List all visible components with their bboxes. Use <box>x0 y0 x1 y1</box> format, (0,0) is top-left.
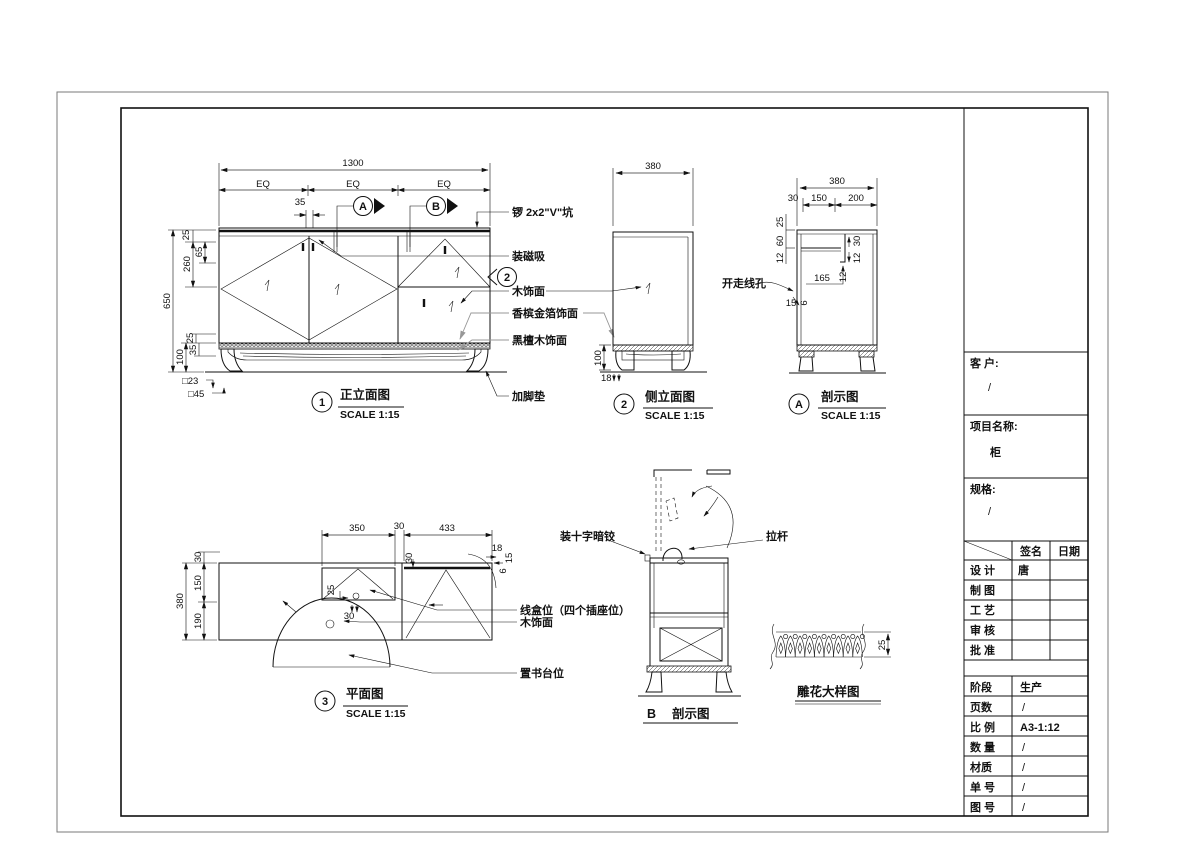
dim-p-150: 150 <box>193 575 204 591</box>
dim-p-350: 350 <box>349 523 365 534</box>
plan-view: 350 30 433 18 15 6 30 25 30 30 150 190 3… <box>175 521 630 720</box>
dim-p-433: 433 <box>439 523 455 534</box>
sign-header: 签名 <box>1019 544 1042 558</box>
cad-sheet: 1300 EQ EQ EQ 35 A B 650 25 260 65 25 10… <box>0 0 1191 842</box>
svg-text:B: B <box>432 201 440 213</box>
callout-champagne-gold: 香槟金箔饰面 <box>511 306 578 320</box>
dim-p-30-mid: 30 <box>404 553 415 564</box>
carving-detail-view: 25 雕花大样图 <box>770 624 891 704</box>
plan-view-scale: SCALE 1:15 <box>346 708 406 720</box>
dim-overall-height: 650 <box>162 293 173 309</box>
ratio-value: A3-1:12 <box>1020 722 1060 734</box>
drawing-no-value: / <box>1022 802 1026 814</box>
side-elevation-view: 380 100 18 2 侧立面图 SCALE 1:15 <box>593 161 713 422</box>
dim-p-6: 6 <box>498 568 509 573</box>
callout-wood-veneer: 木饰面 <box>511 284 545 298</box>
svg-text:A: A <box>359 201 367 213</box>
section-marker-b-arrow-icon <box>447 198 458 214</box>
callout-ebony-veneer: 黑檀木饰面 <box>512 333 567 347</box>
dim-side-depth: 380 <box>645 161 661 172</box>
callout-book-stand: 置书台位 <box>520 666 564 680</box>
dim-top-board: 25 <box>181 230 192 241</box>
dim-side-base: 100 <box>593 350 604 366</box>
cabinet-front-outline <box>219 228 490 343</box>
section-a-outline <box>797 230 877 345</box>
inner-border <box>121 108 1088 816</box>
draft-label: 制 图 <box>970 583 995 597</box>
order-value: / <box>1022 782 1026 794</box>
stage-value: 生产 <box>1020 680 1042 694</box>
dim-a-12-mid: 12 <box>838 272 849 283</box>
section-b-title: 剖示图 <box>672 706 710 721</box>
design-label: 设 计 <box>970 563 995 577</box>
dim-a-30: 30 <box>788 193 799 204</box>
spec-value: / <box>988 506 992 518</box>
dim-eq-2: EQ <box>346 179 360 190</box>
cabinet-side-outline <box>613 232 693 345</box>
plan-outline <box>219 563 492 640</box>
dim-a-30-right: 30 <box>852 236 863 247</box>
carving-title: 雕花大样图 <box>797 684 860 699</box>
section-a-view: 380 30 150 200 25 60 12 30 12 165 12 15 … <box>722 176 886 422</box>
front-left-leg <box>221 349 242 371</box>
dim-eq-3: EQ <box>437 179 451 190</box>
dim-a-12-right: 12 <box>852 253 863 264</box>
section-a-scale: SCALE 1:15 <box>821 410 881 422</box>
drawing-canvas: 1300 EQ EQ EQ 35 A B 650 25 260 65 25 10… <box>0 0 1191 842</box>
title-block: 客 户: / 项目名称: 柜 规格: / 签名 日期 设 计 唐 制 图 工 艺… <box>964 108 1088 816</box>
review-label: 审 核 <box>970 623 995 637</box>
book-stand-arc <box>273 598 390 667</box>
callout-v-groove: 锣 2x2"V"坑 <box>512 205 573 219</box>
dim-a-200: 200 <box>848 193 864 204</box>
front-elevation-view: 1300 EQ EQ EQ 35 A B 650 25 260 65 25 10… <box>162 158 641 421</box>
dim-door-gap: 35 <box>295 197 306 208</box>
pages-label: 页数 <box>970 700 993 714</box>
pull-rod-handle <box>663 548 682 561</box>
svg-text:A: A <box>795 399 803 411</box>
dim-eq-1: EQ <box>256 179 270 190</box>
outer-border <box>57 92 1108 832</box>
stage-label: 阶段 <box>970 680 992 694</box>
dim-overall-width: 1300 <box>342 158 363 169</box>
dim-p-190: 190 <box>193 613 204 629</box>
callout-pull-rod: 拉杆 <box>766 529 788 543</box>
dim-a-150: 150 <box>811 193 827 204</box>
dim-p-25: 25 <box>326 585 337 596</box>
callout-socket-box: 线盒位（四个插座位） <box>520 603 630 617</box>
material-value: / <box>1022 762 1026 774</box>
svg-text:2: 2 <box>504 272 510 284</box>
approve-label: 批 准 <box>970 643 995 657</box>
drawing-no-label: 图 号 <box>970 801 995 814</box>
project-value: 柜 <box>989 445 1001 459</box>
dim-a-165: 165 <box>814 273 830 284</box>
dim-a-depth: 380 <box>829 176 845 187</box>
dim-p-18: 18 <box>492 543 503 554</box>
dim-a-25: 25 <box>775 217 786 228</box>
qty-label: 数 量 <box>970 740 995 754</box>
date-header: 日期 <box>1058 544 1080 558</box>
dim-p-30-left: 30 <box>193 552 204 563</box>
section-b-view: 装十字暗铰 拉杆 B 剖示图 <box>559 470 788 723</box>
front-view-scale: SCALE 1:15 <box>340 409 400 421</box>
callout-wire-hole: 开走线孔 <box>722 276 766 290</box>
callout-magnet: 装磁吸 <box>511 249 546 263</box>
dim-upper-section: 260 <box>182 256 193 272</box>
break-line-left <box>770 624 775 669</box>
dim-a-12-left: 12 <box>775 253 786 264</box>
client-label: 客 户: <box>969 356 999 370</box>
section-a-title: 剖示图 <box>821 389 859 404</box>
plan-view-title: 平面图 <box>346 687 384 701</box>
break-line-right <box>860 624 865 669</box>
dim-p-380: 380 <box>175 593 186 609</box>
dim-leg-bottom: □45 <box>188 389 204 400</box>
material-label: 材质 <box>970 760 992 774</box>
side-base-band <box>613 345 693 351</box>
dim-p-30-top: 30 <box>394 521 405 532</box>
callout-plan-wood: 木饰面 <box>519 615 553 629</box>
callout-cross-hinge: 装十字暗铰 <box>559 529 615 543</box>
project-label: 项目名称: <box>970 419 1018 433</box>
pages-value: / <box>1022 702 1026 714</box>
dim-p-30-box: 30 <box>344 611 355 622</box>
front-view-title: 正立面图 <box>340 387 390 402</box>
dim-18: 18 <box>601 373 612 384</box>
dim-a-6: 6 <box>799 300 810 305</box>
diagonal-divider <box>964 541 1012 560</box>
svg-text:3: 3 <box>322 696 328 708</box>
qty-value: / <box>1022 742 1026 754</box>
dim-apron: 35 <box>188 345 199 356</box>
section-marker-a-arrow-icon <box>374 198 385 214</box>
front-right-leg <box>467 349 488 371</box>
craft-label: 工 艺 <box>970 603 995 617</box>
dim-base-band: 25 <box>185 333 196 344</box>
dim-65: 65 <box>194 247 205 258</box>
dim-leg-top: □23 <box>182 376 198 387</box>
carved-base-band <box>219 343 490 349</box>
dim-p-15: 15 <box>504 553 515 564</box>
svg-text:1: 1 <box>319 397 325 409</box>
dim-a-60: 60 <box>775 236 786 247</box>
spec-label: 规格: <box>970 482 996 496</box>
section-b-letter: B <box>647 707 656 721</box>
design-sign: 唐 <box>1018 563 1029 577</box>
side-view-title: 侧立面图 <box>645 389 695 404</box>
order-label: 单 号 <box>970 780 995 794</box>
svg-text:2: 2 <box>621 399 627 411</box>
ratio-label: 比 例 <box>970 720 995 734</box>
dim-base-height: 100 <box>175 349 186 365</box>
client-value: / <box>988 382 992 394</box>
dim-carve-25: 25 <box>877 640 888 651</box>
callout-foot-pad: 加脚垫 <box>511 389 545 403</box>
side-view-scale: SCALE 1:15 <box>645 410 705 422</box>
